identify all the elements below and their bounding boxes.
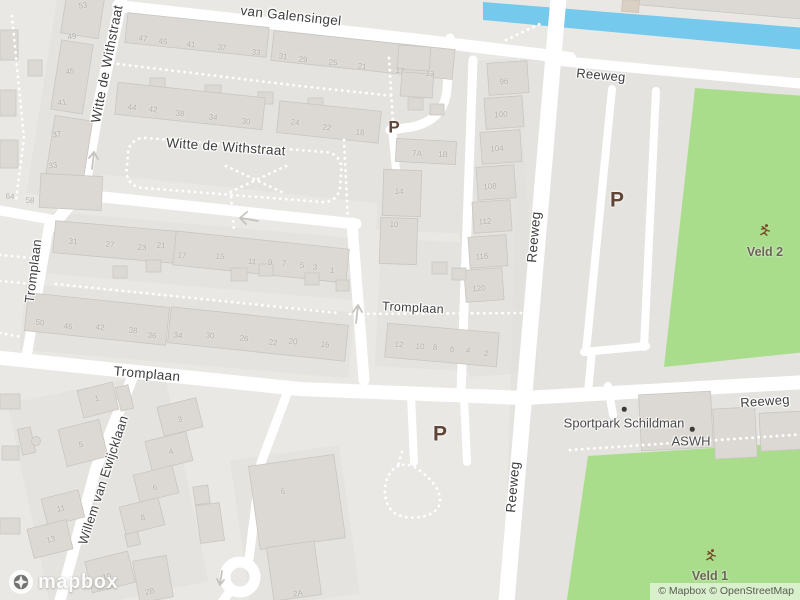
road-parking-stub-south-1 bbox=[411, 395, 414, 462]
mapbox-logo-text: mapbox bbox=[38, 571, 118, 594]
road-sportpark-stub bbox=[608, 386, 613, 415]
mapbox-logo[interactable]: mapbox bbox=[8, 569, 118, 595]
map-canvas[interactable] bbox=[0, 0, 800, 600]
building-shed-beige bbox=[622, 0, 640, 13]
mapbox-logo-icon bbox=[8, 569, 34, 595]
sports-field-veld1 bbox=[566, 442, 800, 600]
map-attribution[interactable]: © Mapbox © OpenStreetMap bbox=[650, 583, 800, 600]
road-parking-stub-north bbox=[392, 128, 396, 170]
road-parking-stub-south-2 bbox=[464, 397, 467, 462]
